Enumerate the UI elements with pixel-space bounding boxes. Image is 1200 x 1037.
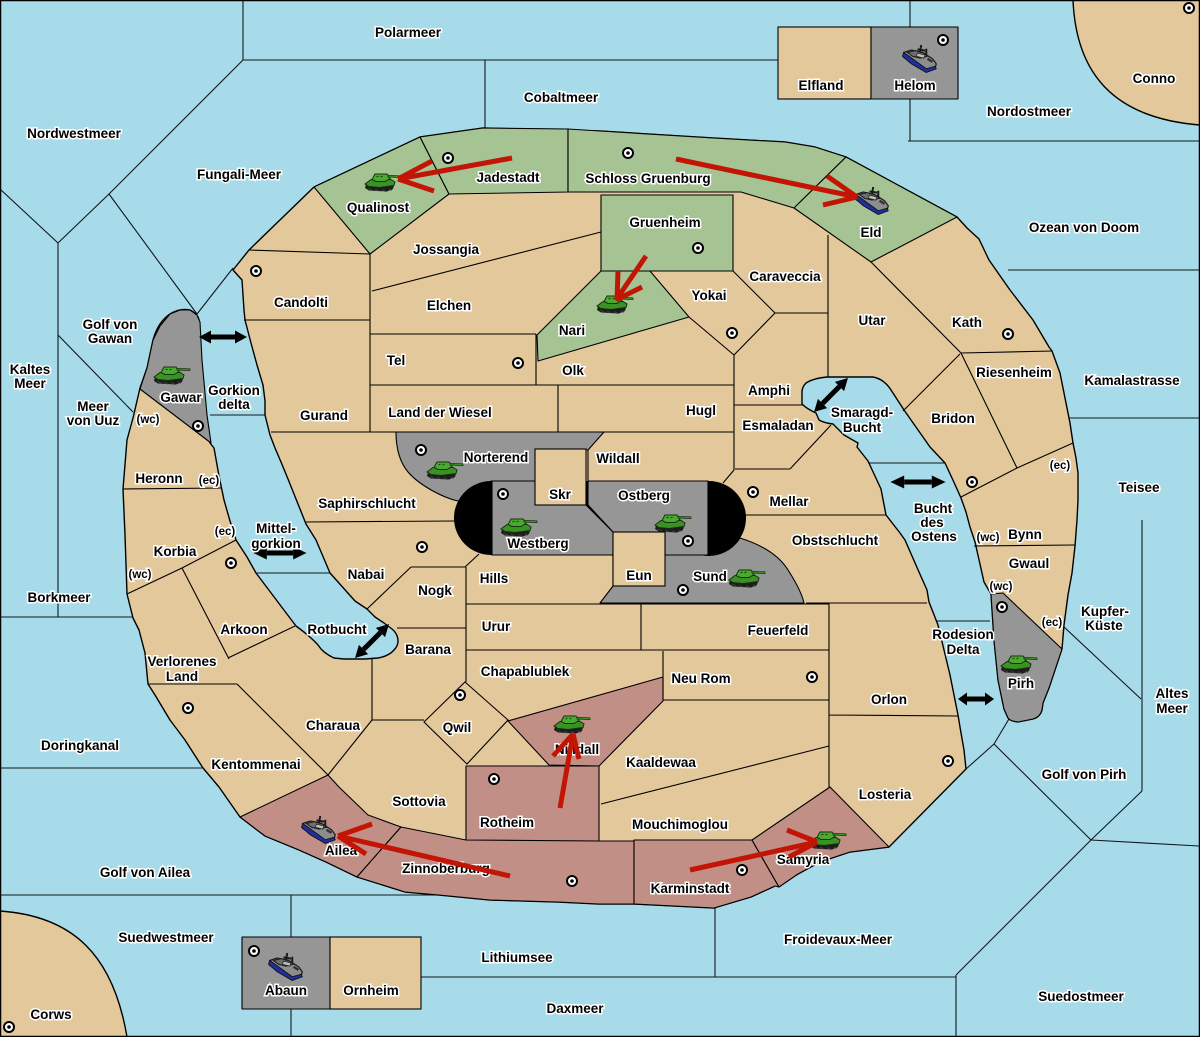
svg-text:Charaua: Charaua (306, 718, 361, 733)
svg-text:Samyria: Samyria (777, 852, 830, 867)
svg-text:Gawan: Gawan (88, 331, 132, 346)
svg-text:Bucht: Bucht (843, 420, 882, 435)
svg-text:Schloss Gruenburg: Schloss Gruenburg (585, 171, 710, 186)
svg-text:Golf von Pirh: Golf von Pirh (1042, 767, 1127, 782)
svg-text:Caraveccia: Caraveccia (749, 269, 821, 284)
svg-text:Amphi: Amphi (748, 383, 790, 398)
svg-text:Sund: Sund (693, 569, 727, 584)
svg-text:Conno: Conno (1133, 71, 1176, 86)
svg-text:delta: delta (218, 397, 250, 412)
svg-text:Küste: Küste (1085, 618, 1123, 633)
svg-text:Losteria: Losteria (859, 787, 912, 802)
svg-text:Lithiumsee: Lithiumsee (481, 950, 553, 965)
svg-text:Korbia: Korbia (154, 544, 197, 559)
svg-text:Meer: Meer (1156, 701, 1188, 716)
svg-text:von Uuz: von Uuz (67, 413, 120, 428)
svg-text:(ec): (ec) (199, 475, 220, 487)
svg-text:Land der Wiesel: Land der Wiesel (388, 405, 491, 420)
svg-text:Mittel-: Mittel- (256, 521, 296, 536)
svg-text:Delta: Delta (946, 642, 980, 657)
svg-text:Land: Land (166, 669, 198, 684)
svg-text:(ec): (ec) (1050, 460, 1071, 472)
svg-text:Polarmeer: Polarmeer (375, 25, 442, 40)
svg-text:Chapablublek: Chapablublek (481, 664, 570, 679)
svg-text:Bucht: Bucht (914, 501, 953, 516)
svg-text:Orlon: Orlon (871, 692, 907, 707)
svg-text:Jossangia: Jossangia (413, 242, 480, 257)
svg-text:Kamalastrasse: Kamalastrasse (1084, 373, 1180, 388)
svg-text:Gwaul: Gwaul (1009, 556, 1050, 571)
svg-text:Nogk: Nogk (418, 583, 452, 598)
svg-text:Qwil: Qwil (443, 720, 472, 735)
svg-text:Ornheim: Ornheim (343, 983, 399, 998)
svg-text:Candolti: Candolti (274, 295, 328, 310)
svg-text:Karminstadt: Karminstadt (651, 881, 730, 896)
svg-text:Doringkanal: Doringkanal (41, 738, 119, 753)
svg-text:Qualinost: Qualinost (347, 200, 410, 215)
svg-text:Kaaldewaa: Kaaldewaa (626, 755, 696, 770)
svg-text:Barana: Barana (405, 642, 451, 657)
svg-text:Suedwestmeer: Suedwestmeer (118, 930, 214, 945)
svg-text:Norterend: Norterend (464, 450, 529, 465)
svg-text:(wc): (wc) (137, 414, 160, 426)
svg-text:Rodesion: Rodesion (932, 627, 994, 642)
svg-text:Tel: Tel (387, 353, 406, 368)
svg-text:Feuerfeld: Feuerfeld (748, 623, 809, 638)
svg-text:Borkmeer: Borkmeer (27, 590, 91, 605)
svg-text:Mellar: Mellar (769, 494, 809, 509)
svg-text:Froidevaux-Meer: Froidevaux-Meer (784, 932, 893, 947)
svg-text:Suedostmeer: Suedostmeer (1038, 989, 1124, 1004)
svg-text:Hugl: Hugl (686, 403, 716, 418)
svg-text:Eun: Eun (626, 568, 652, 583)
svg-text:Abaun: Abaun (265, 983, 307, 998)
svg-text:Heronn: Heronn (135, 471, 182, 486)
svg-text:Urur: Urur (482, 619, 511, 634)
svg-text:Nari: Nari (559, 323, 585, 338)
svg-text:Mouchimoglou: Mouchimoglou (632, 817, 728, 832)
svg-text:Kupfer-: Kupfer- (1081, 604, 1129, 619)
svg-text:Gawar: Gawar (160, 390, 202, 405)
svg-text:Teisee: Teisee (1118, 480, 1160, 495)
svg-text:Skr: Skr (549, 487, 572, 502)
svg-text:Riesenheim: Riesenheim (976, 365, 1052, 380)
svg-text:gorkion: gorkion (251, 536, 301, 551)
svg-text:Meer: Meer (77, 399, 109, 414)
svg-text:Elchen: Elchen (427, 298, 471, 313)
svg-text:Verlorenes: Verlorenes (147, 654, 216, 669)
svg-text:Wildall: Wildall (596, 451, 639, 466)
svg-text:des: des (920, 515, 943, 530)
svg-text:Bynn: Bynn (1008, 527, 1042, 542)
svg-text:Eld: Eld (860, 225, 881, 240)
svg-text:Nordostmeer: Nordostmeer (987, 104, 1072, 119)
svg-text:Olk: Olk (562, 363, 584, 378)
svg-text:Jadestadt: Jadestadt (476, 170, 540, 185)
svg-text:Nordwestmeer: Nordwestmeer (27, 126, 122, 141)
svg-text:Rotbucht: Rotbucht (307, 622, 367, 637)
svg-text:Nabai: Nabai (348, 567, 385, 582)
svg-text:Cobaltmeer: Cobaltmeer (524, 90, 599, 105)
svg-text:Yokai: Yokai (691, 288, 726, 303)
svg-text:Fungali-Meer: Fungali-Meer (197, 167, 282, 182)
svg-text:Meer: Meer (14, 376, 46, 391)
svg-text:Smaragd-: Smaragd- (831, 405, 893, 420)
svg-text:Bridon: Bridon (931, 411, 975, 426)
svg-text:Elfland: Elfland (798, 78, 843, 93)
svg-text:Golf von Ailea: Golf von Ailea (100, 865, 191, 880)
svg-text:Pirh: Pirh (1008, 676, 1034, 691)
svg-text:Golf von: Golf von (83, 317, 138, 332)
svg-text:Gurand: Gurand (300, 408, 348, 423)
svg-text:Rotheim: Rotheim (480, 815, 534, 830)
svg-text:(wc): (wc) (129, 569, 152, 581)
svg-text:(ec): (ec) (215, 526, 236, 538)
svg-text:Arkoon: Arkoon (220, 622, 267, 637)
svg-text:(ec): (ec) (1042, 617, 1063, 629)
svg-text:(wc): (wc) (990, 581, 1013, 593)
svg-text:Kath: Kath (952, 315, 982, 330)
svg-text:Obstschlucht: Obstschlucht (792, 533, 879, 548)
svg-text:Esmaladan: Esmaladan (742, 418, 813, 433)
svg-text:Helom: Helom (894, 78, 935, 93)
svg-text:Altes: Altes (1155, 686, 1188, 701)
svg-text:Neu Rom: Neu Rom (671, 671, 730, 686)
svg-text:Hills: Hills (480, 571, 509, 586)
svg-text:Saphirschlucht: Saphirschlucht (318, 496, 416, 511)
svg-text:Kentommenai: Kentommenai (211, 757, 300, 772)
svg-text:Gruenheim: Gruenheim (629, 215, 700, 230)
svg-text:(wc): (wc) (977, 532, 1000, 544)
svg-text:Sottovia: Sottovia (392, 794, 446, 809)
svg-text:Gorkion: Gorkion (208, 383, 260, 398)
svg-text:Ostberg: Ostberg (618, 488, 670, 503)
svg-text:Westberg: Westberg (507, 536, 568, 551)
svg-text:Kaltes: Kaltes (10, 362, 51, 377)
svg-text:Corws: Corws (30, 1007, 71, 1022)
svg-text:Daxmeer: Daxmeer (546, 1001, 604, 1016)
svg-text:Utar: Utar (858, 313, 886, 328)
svg-text:Ostens: Ostens (911, 529, 957, 544)
svg-text:Ozean von Doom: Ozean von Doom (1029, 220, 1139, 235)
